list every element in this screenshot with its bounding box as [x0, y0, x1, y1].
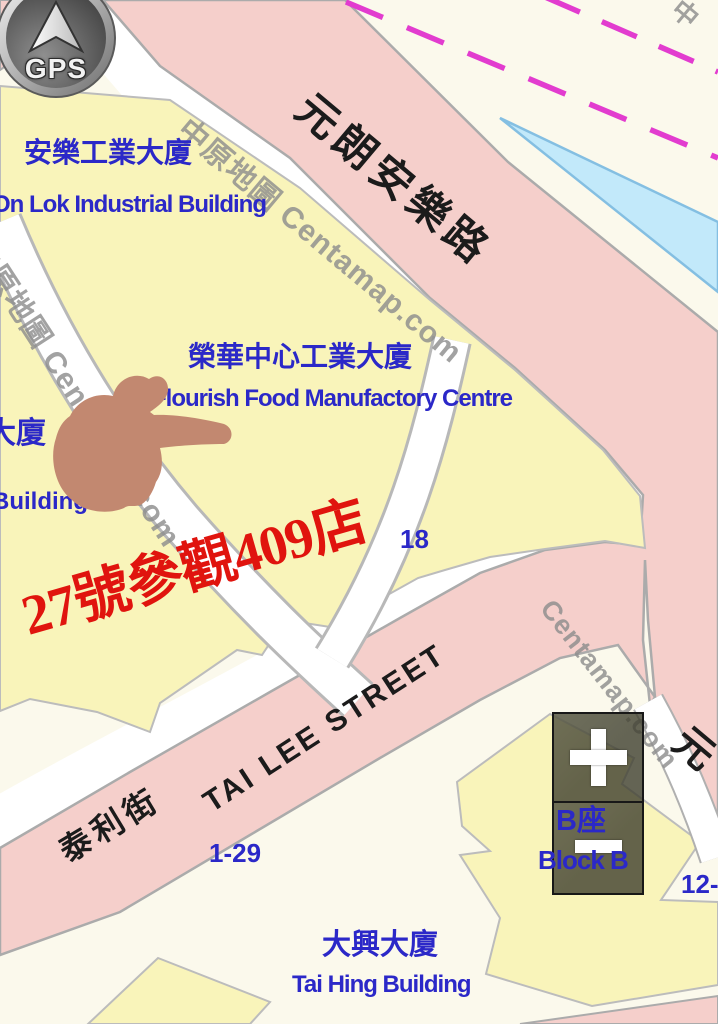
map-canvas[interactable]: 中原地圖 Centamap.com 中原地圖 Centamap.com Cent…	[0, 0, 718, 1024]
label-block-b-en: Block B	[538, 847, 628, 874]
label-range-1-29: 1-29	[209, 840, 261, 867]
label-on-lok-zh: 安樂工業大廈	[24, 138, 192, 167]
label-block-b-zh: B座	[556, 806, 606, 836]
label-tai-hing-zh: 大興大廈	[322, 930, 438, 960]
gps-button[interactable]: GPS	[0, 0, 119, 101]
hand-pointer-icon	[40, 360, 250, 520]
zoom-in-button[interactable]	[552, 712, 644, 803]
gps-button-graphic	[0, 0, 119, 101]
label-tai-hing-en: Tai Hing Building	[292, 972, 471, 997]
label-range-12: 12-	[681, 871, 718, 898]
label-lot-18: 18	[400, 526, 429, 553]
gps-button-label: GPS	[0, 53, 119, 85]
building-bottom-left	[88, 958, 270, 1024]
plus-icon	[570, 750, 627, 765]
label-on-lok-en: On Lok Industrial Building	[0, 192, 266, 217]
